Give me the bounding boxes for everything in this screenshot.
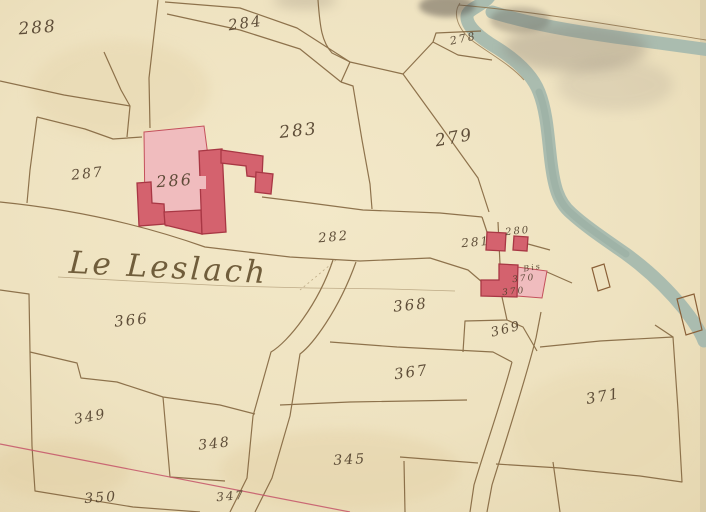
- parcel-label-348: 348: [197, 434, 231, 453]
- page-right-edge: [700, 0, 706, 512]
- parcel-label-283: 283: [277, 119, 318, 143]
- cadastral-map: Le Leslach 28828427828327928728628228128…: [0, 0, 706, 512]
- building-286-annex: [255, 172, 273, 194]
- parcel-label-281: 281: [460, 234, 491, 251]
- parcel-label-347: 347: [216, 488, 246, 504]
- parcel-label-286: 286: [155, 170, 194, 192]
- parcel-label-366: 366: [113, 309, 149, 331]
- parcel-label-368: 368: [392, 294, 428, 316]
- cadastral-map-page: Le Leslach 28828427828327928728628228128…: [0, 0, 706, 512]
- parcel-label-350: 350: [84, 489, 118, 507]
- parcel-label-282: 282: [317, 229, 350, 247]
- parcel-label-345: 345: [333, 451, 367, 469]
- parcel-label-288: 288: [17, 17, 58, 40]
- building-280: [513, 236, 528, 251]
- building-286-east-wing-notch: [199, 176, 206, 189]
